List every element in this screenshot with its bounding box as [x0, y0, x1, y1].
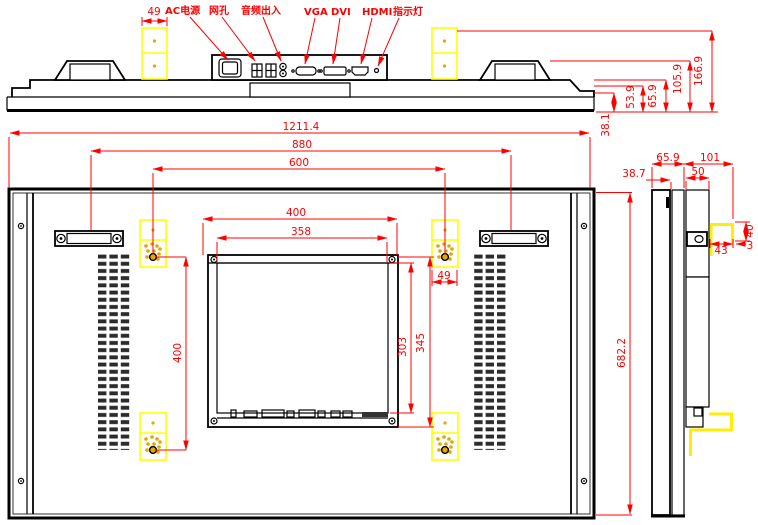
label-indicator: 指示灯	[393, 5, 423, 18]
engineering-drawing-page: AC电源 网孔 音频出入 VGA DVI HDMI 指示灯 49	[0, 0, 758, 525]
vesa-bracket-bottom-left	[140, 413, 166, 460]
mount-ear	[687, 232, 707, 246]
dim-hook-height: 40	[744, 224, 756, 237]
dim-166-9: 166.9	[693, 56, 705, 86]
right-handle-grip	[495, 64, 535, 80]
dim-module-width: 400	[286, 207, 306, 219]
monitor-dimension-drawing: AC电源 网孔 音频出入 VGA DVI HDMI 指示灯 49	[0, 0, 758, 525]
top-view-bracket-left	[142, 28, 167, 79]
left-vent-grille	[97, 253, 131, 450]
dim-total-depth: 101	[700, 152, 720, 164]
mount-plate-lower	[686, 277, 709, 407]
right-handle-bracket	[480, 231, 548, 246]
dim-65-9-top: 65.9	[647, 84, 659, 107]
front-view: 1211.4 880 600 400 358 400	[9, 121, 632, 518]
dim-hook-width: 43	[714, 245, 727, 257]
dim-module-face-width: 358	[291, 226, 311, 238]
side-view: 65.9 101 50 38.7 40 43 3	[622, 152, 756, 516]
dim-bracket-width-top: 49	[142, 6, 167, 26]
dim-module-height: 345	[415, 333, 427, 353]
vesa-bracket-bottom-right	[432, 413, 458, 460]
left-handle-bracket	[55, 231, 123, 246]
label-audio: 音频出入	[241, 4, 281, 17]
left-handle-grip	[70, 64, 110, 80]
label-lan: 网孔	[209, 4, 229, 17]
label-ac-power: AC电源	[165, 4, 200, 17]
dim-bracket-spacing-v: 400	[172, 343, 184, 363]
dim-bracket-width-front: 49	[437, 270, 450, 282]
dim-105-9: 105.9	[672, 64, 684, 94]
label-vga: VGA	[304, 7, 328, 18]
svg-text:49: 49	[147, 6, 160, 18]
dim-53-9: 53.9	[625, 85, 637, 108]
side-front-slab	[652, 190, 670, 515]
dim-38-1: 38.1	[600, 113, 612, 136]
top-view-recess-plate	[250, 83, 350, 97]
mount-plate-notch	[694, 408, 702, 416]
label-dvi: DVI	[331, 7, 351, 18]
dim-overall-height: 682.2	[616, 338, 628, 368]
label-hdmi: HDMI	[362, 7, 392, 18]
dim-module-face-height: 303	[397, 337, 409, 357]
dim-handle-spacing: 880	[292, 139, 312, 151]
top-view-stacked-dims: 166.9 105.9 65.9 53.9 38.1	[457, 31, 718, 137]
inner-module	[208, 255, 398, 427]
dim-plate-width: 50	[691, 166, 704, 178]
dim-panel-depth: 65.9	[656, 152, 679, 164]
dim-hook-gap: 3	[747, 240, 754, 252]
dim-front-depth: 38.7	[622, 168, 645, 180]
dim-bracket-spacing-h: 600	[289, 157, 309, 169]
side-back-slab	[672, 190, 684, 515]
dim-overall-width: 1211.4	[283, 121, 320, 133]
top-view-bracket-right	[432, 28, 457, 79]
top-view: AC电源 网孔 音频出入 VGA DVI HDMI 指示灯 49	[7, 4, 718, 137]
side-detail-mark	[666, 197, 669, 208]
right-vent-grille	[473, 253, 507, 450]
